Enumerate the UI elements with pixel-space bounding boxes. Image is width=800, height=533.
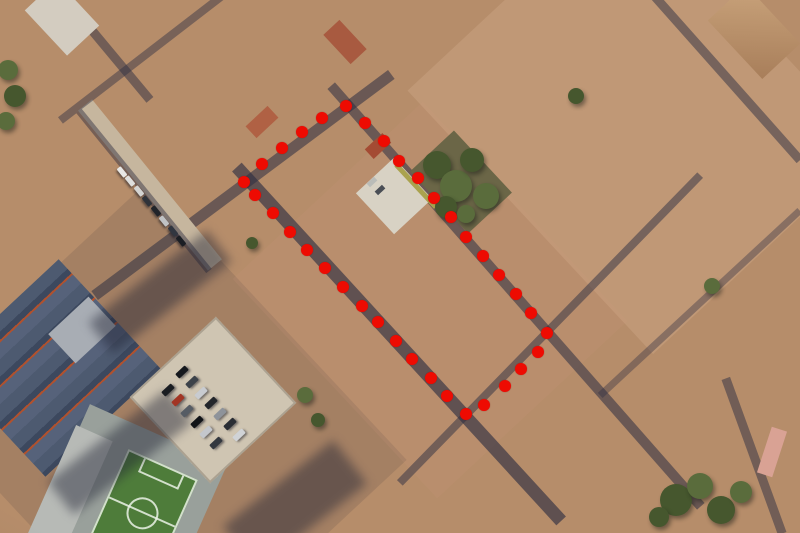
boundary-dot xyxy=(238,176,250,188)
boundary-dot xyxy=(390,335,402,347)
boundary-dot xyxy=(445,211,457,223)
boundary-dot xyxy=(510,288,522,300)
boundary-dot xyxy=(493,269,505,281)
boundary-dot xyxy=(532,346,544,358)
boundary-dot xyxy=(393,155,405,167)
boundary-dot xyxy=(316,112,328,124)
boundary-dot xyxy=(460,408,472,420)
boundary-dot xyxy=(296,126,308,138)
boundary-dot xyxy=(425,372,437,384)
boundary-dot xyxy=(359,117,371,129)
boundary-dot xyxy=(477,250,489,262)
boundary-dot xyxy=(412,172,424,184)
boundary-dot xyxy=(372,316,384,328)
boundary-dot xyxy=(249,189,261,201)
boundary-dot xyxy=(541,327,553,339)
boundary-dot xyxy=(378,135,390,147)
boundary-dot xyxy=(441,390,453,402)
boundary-dot xyxy=(499,380,511,392)
boundary-dot xyxy=(460,231,472,243)
boundary-dot xyxy=(428,192,440,204)
satellite-map[interactable] xyxy=(0,0,800,533)
boundary-dot xyxy=(256,158,268,170)
boundary-dot xyxy=(406,353,418,365)
boundary-dot xyxy=(478,399,490,411)
boundary-dot xyxy=(301,244,313,256)
boundary-dot xyxy=(284,226,296,238)
boundary-dot xyxy=(267,207,279,219)
boundary-dot xyxy=(340,100,352,112)
boundary-dot-layer xyxy=(0,0,800,533)
boundary-dot xyxy=(356,300,368,312)
boundary-dot xyxy=(515,363,527,375)
boundary-dot xyxy=(319,262,331,274)
boundary-dot xyxy=(276,142,288,154)
boundary-dot xyxy=(525,307,537,319)
boundary-dot xyxy=(337,281,349,293)
